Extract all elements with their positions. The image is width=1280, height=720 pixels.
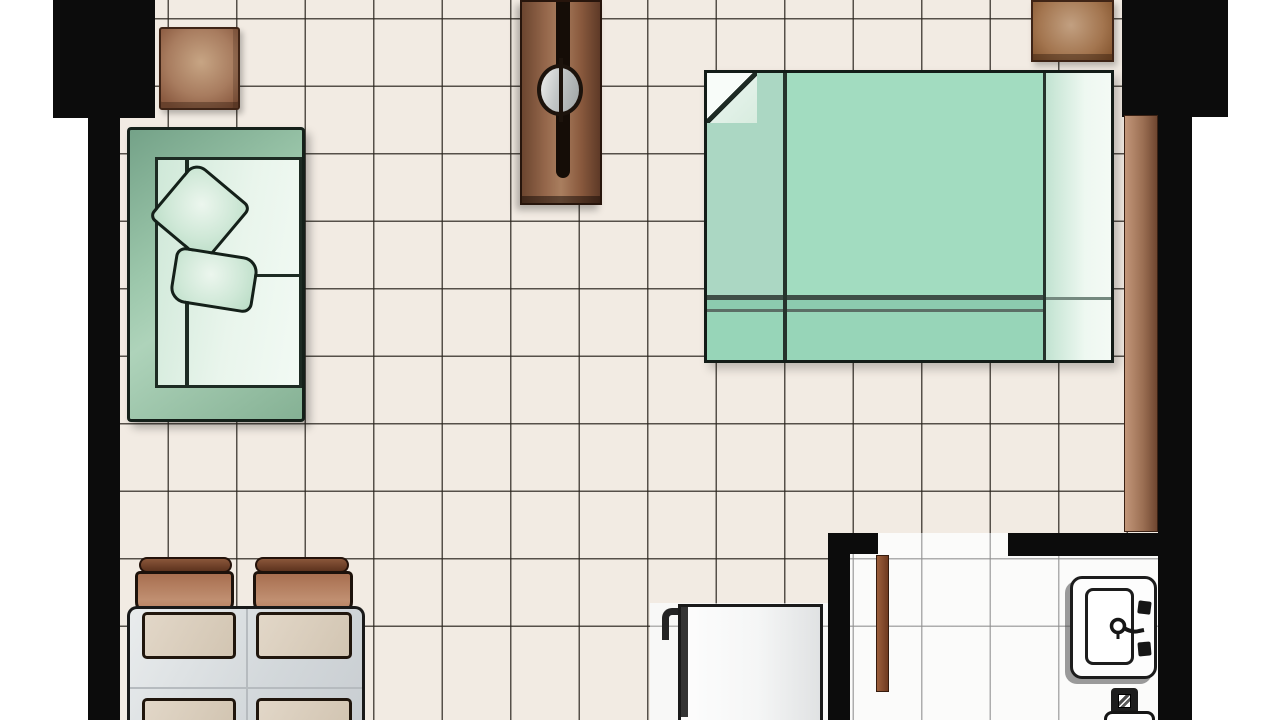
floor-drain-grate <box>1118 694 1131 708</box>
bathroom-door-leaf <box>876 555 889 692</box>
console-knob-line <box>559 58 563 122</box>
nightstand <box>1031 0 1114 62</box>
bed-sheet-divider <box>783 73 787 360</box>
fridge-hinge-edge <box>681 607 688 717</box>
wall-right <box>1158 115 1192 720</box>
exterior-area <box>0 118 88 720</box>
wall-top-right <box>1122 0 1228 117</box>
exterior-area <box>0 0 53 118</box>
exterior-area <box>1192 117 1280 720</box>
wall-bath-left <box>828 533 850 720</box>
seat-cushion <box>142 698 236 720</box>
wall-bath-top <box>1008 533 1192 556</box>
fridge-handle <box>662 608 678 640</box>
bed-lower-blanket <box>707 312 1043 360</box>
seat-cushion <box>256 698 352 720</box>
side-table <box>159 27 240 110</box>
table-center-line-v <box>246 609 248 720</box>
console <box>520 0 602 205</box>
bed-blanket-fold-band <box>707 295 1043 312</box>
seat-cushion <box>142 612 236 659</box>
toilet <box>1104 711 1155 720</box>
floor-plan-canvas <box>0 0 1280 720</box>
sofa <box>127 127 305 422</box>
bed-folded-corner <box>707 73 757 123</box>
entry-door-leaf <box>1124 115 1158 532</box>
faucet-icon <box>1108 598 1154 660</box>
seat-cushion <box>256 612 352 659</box>
wall-left <box>88 118 120 720</box>
bed-fold-line-right <box>1046 297 1111 300</box>
exterior-area <box>1228 0 1280 117</box>
bed <box>704 70 1114 363</box>
fridge <box>678 604 823 720</box>
table-center-line-h <box>130 687 362 689</box>
bed-mattress-edge <box>1043 73 1111 360</box>
wall-top-left <box>53 0 155 118</box>
